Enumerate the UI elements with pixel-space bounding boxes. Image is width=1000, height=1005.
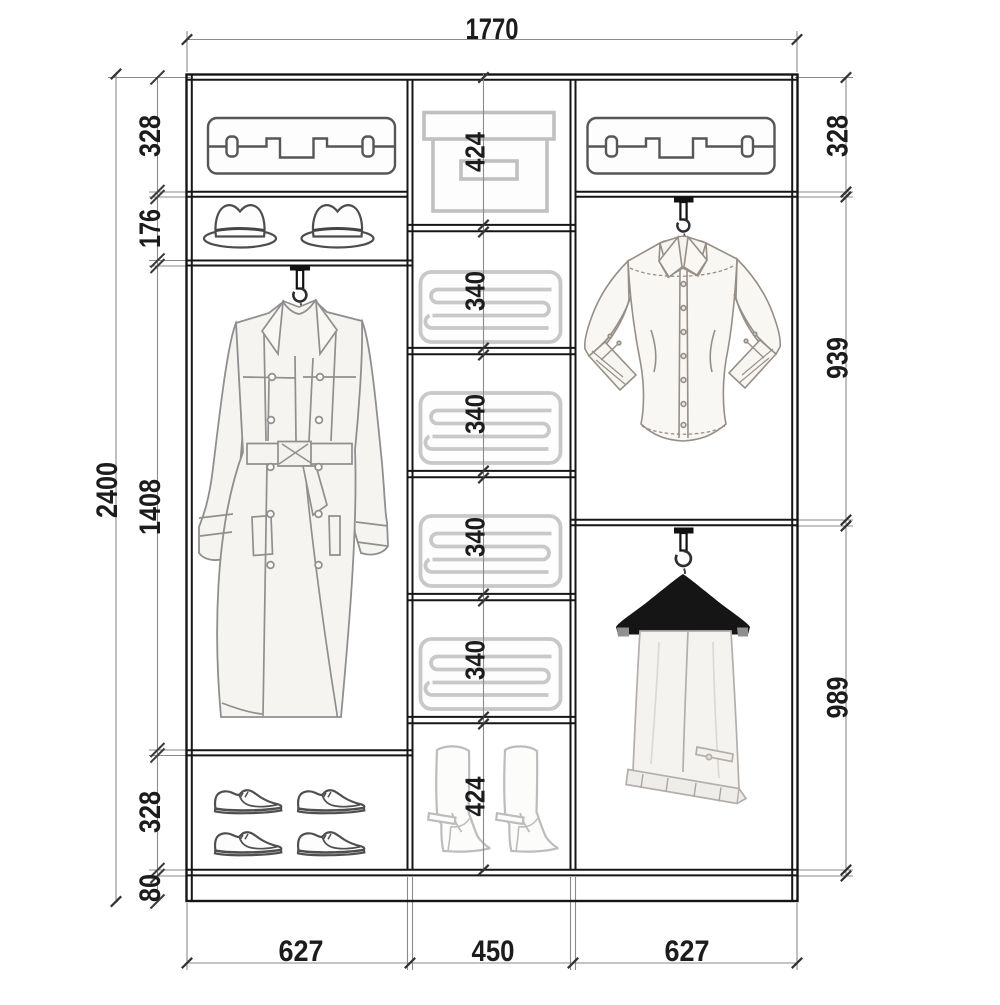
svg-text:627: 627 (279, 935, 324, 968)
svg-text:424: 424 (460, 776, 491, 816)
svg-text:80: 80 (134, 874, 167, 902)
svg-text:627: 627 (665, 935, 710, 968)
svg-text:176: 176 (134, 209, 167, 248)
svg-text:340: 340 (460, 394, 491, 434)
svg-text:1408: 1408 (134, 479, 167, 535)
svg-text:340: 340 (460, 271, 491, 311)
svg-text:424: 424 (460, 132, 491, 172)
svg-text:328: 328 (134, 115, 167, 157)
svg-text:328: 328 (134, 791, 167, 833)
svg-text:450: 450 (472, 935, 515, 968)
svg-text:328: 328 (822, 115, 855, 157)
svg-text:2400: 2400 (91, 462, 124, 518)
svg-text:989: 989 (822, 677, 855, 719)
svg-text:340: 340 (460, 517, 491, 557)
svg-text:939: 939 (822, 337, 855, 379)
svg-text:340: 340 (460, 640, 491, 680)
svg-text:1770: 1770 (466, 13, 519, 46)
